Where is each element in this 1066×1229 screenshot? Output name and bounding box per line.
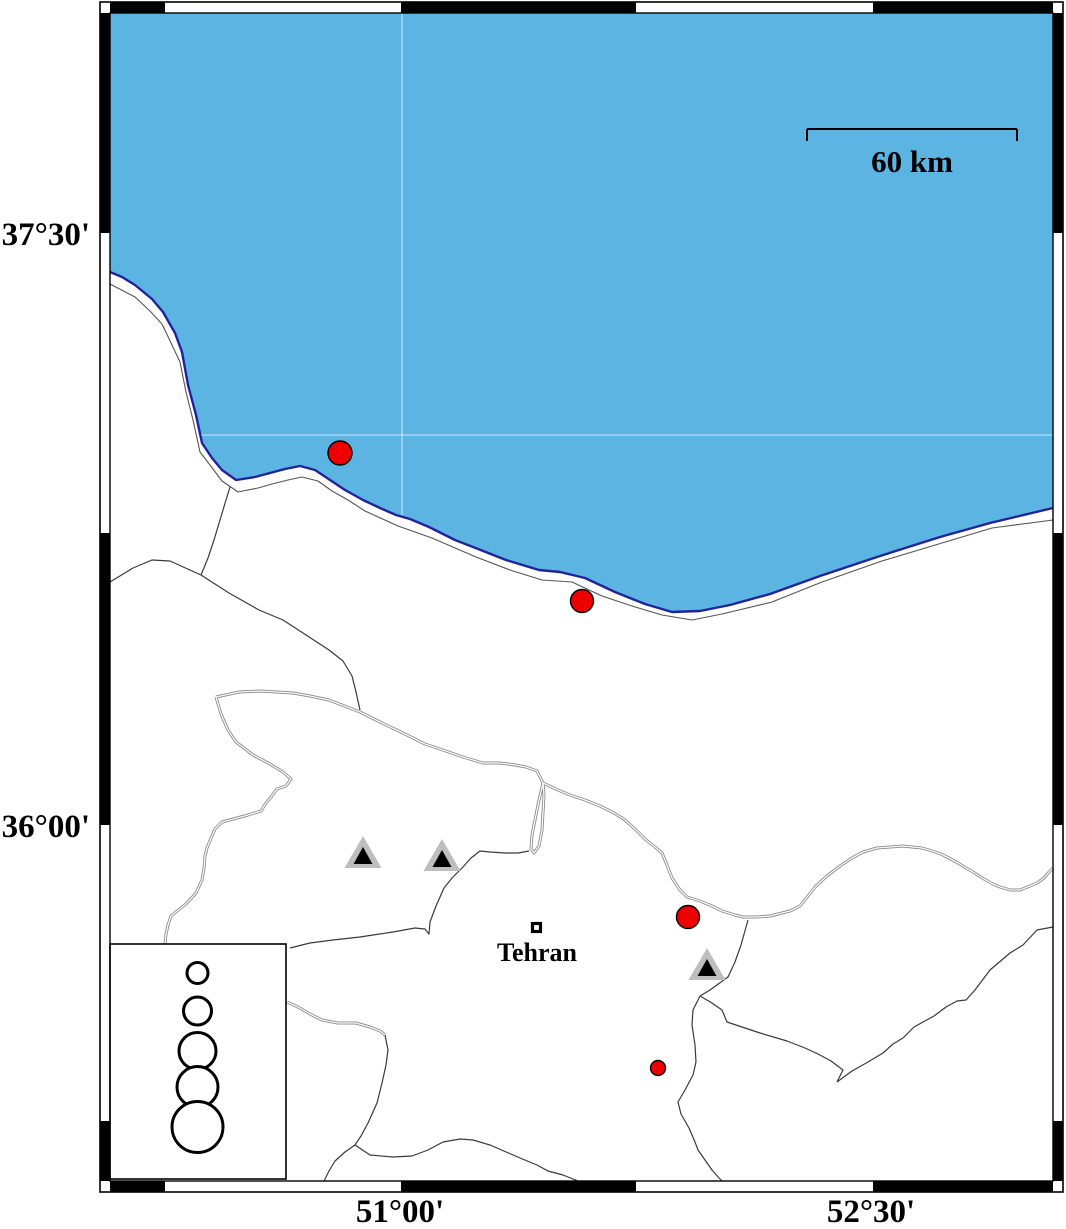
scale-bar-label: 60 km	[871, 144, 953, 179]
city-tehran: Tehran	[497, 924, 577, 968]
legend-size-circle	[187, 963, 208, 984]
legend-size-circle	[184, 997, 212, 1025]
sea-polygon	[110, 13, 1053, 612]
map-svg: Tehran 60 km 37	[0, 0, 1066, 1229]
city-label: Tehran	[497, 938, 577, 967]
legend-size-circle	[179, 1033, 216, 1070]
boundary-v-left-arm	[700, 996, 843, 1082]
lat-label-36-00: 36°00'	[2, 809, 90, 845]
boundary-southeast-branch	[201, 575, 360, 710]
map-canvas: Tehran 60 km 37	[0, 0, 1066, 1229]
boundary-west-fork	[201, 487, 230, 575]
boundary-bottomleft-a	[324, 1145, 355, 1181]
epicenter-marker	[328, 441, 352, 465]
lon-label-51-00: 51°00'	[356, 1194, 444, 1229]
lon-label-52-30: 52°30'	[827, 1194, 915, 1229]
boundary-v-right-arm	[837, 927, 1053, 1082]
boundary-east-long	[543, 783, 1053, 917]
wedge-upper-edge	[216, 691, 543, 783]
epicenter-marker	[677, 906, 700, 929]
legend-size-circle	[172, 1102, 223, 1153]
legend-box	[110, 944, 286, 1179]
boundary-to-left-edge	[110, 560, 201, 582]
boundary-bottomleft-descent	[355, 1035, 388, 1145]
city-square-symbol	[533, 924, 541, 932]
boundary-south-vertical	[678, 996, 722, 1181]
epicenter-marker	[571, 590, 594, 613]
boundary-tehran-north	[290, 851, 529, 948]
boundary-bottomleft-b	[355, 1139, 578, 1181]
province-boundaries-doubled	[165, 691, 1053, 1035]
boundary-legend-east	[287, 1002, 385, 1035]
lat-label-37-30: 37°30'	[2, 217, 90, 253]
epicenter-marker	[651, 1061, 666, 1076]
